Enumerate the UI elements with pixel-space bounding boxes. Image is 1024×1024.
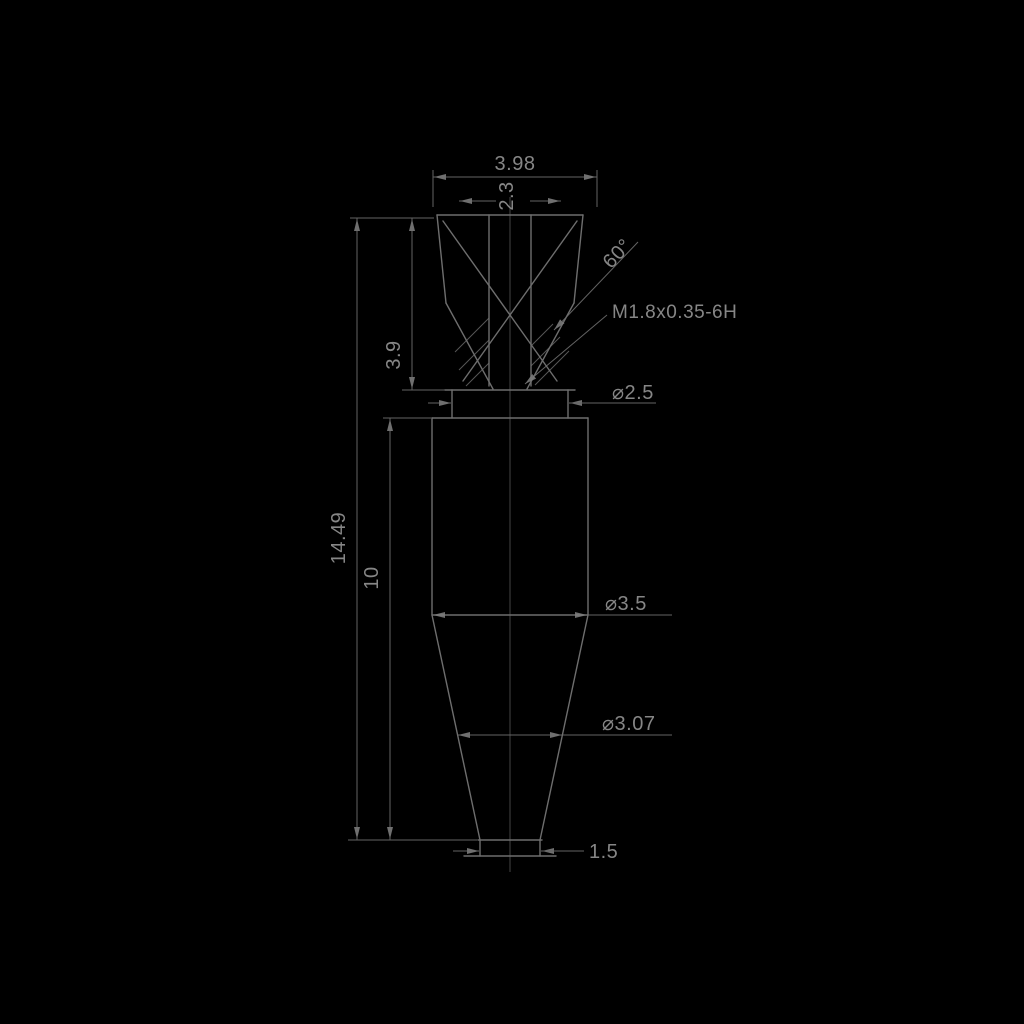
thread-callout-leader bbox=[525, 315, 607, 384]
technical-drawing: 3.98 2.3 60° M1.8x0.35-6H 3.9 ⌀2.5 14.49… bbox=[0, 0, 1024, 1024]
dim-label-head-height: 3.9 bbox=[383, 340, 405, 369]
head-left-side bbox=[437, 215, 446, 303]
lower-cone-right bbox=[540, 615, 588, 840]
thread-callout-label: M1.8x0.35-6H bbox=[612, 302, 737, 323]
dim-label-body-diameter: ⌀3.5 bbox=[605, 593, 647, 615]
dim-label-cone-diameter: ⌀3.07 bbox=[602, 713, 655, 735]
cone-diagonal-2 bbox=[463, 221, 577, 381]
dimension-labels: 3.98 2.3 60° M1.8x0.35-6H 3.9 ⌀2.5 14.49… bbox=[328, 153, 737, 863]
head-right-side bbox=[574, 215, 583, 303]
lower-cone-left bbox=[432, 615, 480, 840]
dim-label-width-inner: 2.3 bbox=[496, 181, 518, 210]
dim-label-total-length: 14.49 bbox=[328, 512, 350, 565]
head-cone-left bbox=[446, 303, 493, 389]
dim-label-width-top: 3.98 bbox=[495, 153, 536, 175]
dim-label-tip-width: 1.5 bbox=[589, 841, 618, 863]
dim-head-height bbox=[402, 218, 445, 390]
dim-label-body-length: 10 bbox=[361, 566, 383, 589]
dim-label-neck-diameter: ⌀2.5 bbox=[612, 382, 654, 404]
dim-body-length bbox=[383, 418, 431, 840]
dim-label-cone-angle: 60° bbox=[599, 235, 637, 273]
